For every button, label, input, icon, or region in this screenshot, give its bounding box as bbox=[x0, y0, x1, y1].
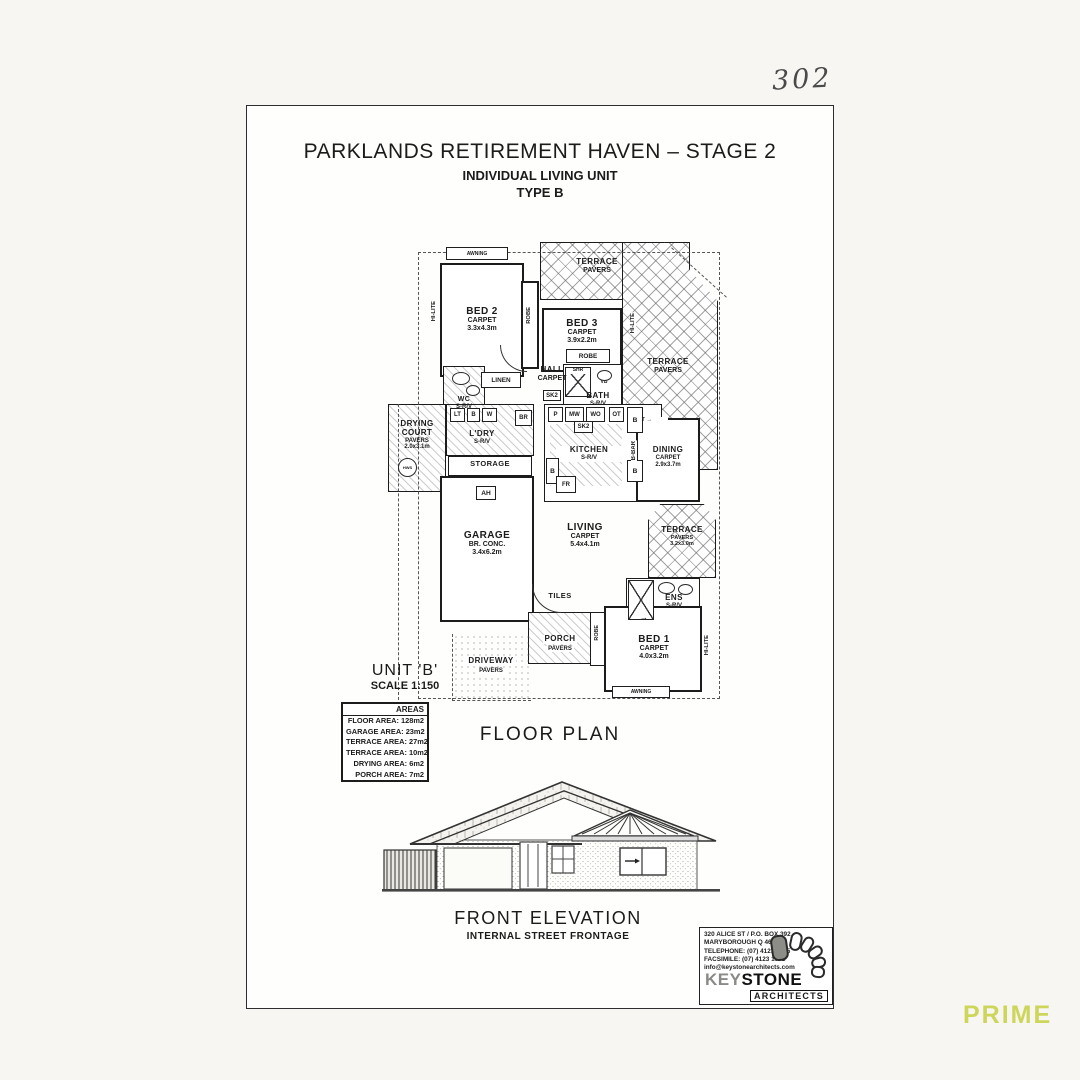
porch-label: PORCH PAVERS bbox=[530, 628, 590, 653]
front-elevation-svg bbox=[382, 770, 722, 898]
room-laundry-label: L'DRY S-R/V bbox=[452, 430, 512, 446]
brand-keystone: KEYSTONE bbox=[705, 970, 802, 990]
areas-row-drying: DRYING AREA: 6m2 bbox=[343, 759, 427, 770]
floor-plan-caption: FLOOR PLAN bbox=[430, 724, 670, 746]
unit-label-block: UNIT 'B' SCALE 1:150 bbox=[350, 662, 460, 692]
storage-label: STORAGE bbox=[448, 460, 532, 468]
robe-bed3: ROBE bbox=[566, 349, 610, 363]
kitchen-sink: SK2 bbox=[574, 421, 593, 433]
brand-architects: ARCHITECTS bbox=[750, 990, 828, 1002]
room-living-label: LIVING CARPET 5.4x4.1m bbox=[550, 522, 620, 549]
page-subtitle: INDIVIDUAL LIVING UNIT bbox=[290, 168, 790, 183]
room-bath-label: BATH S-R/V bbox=[576, 392, 620, 408]
awning-bottom: AWNING bbox=[612, 686, 670, 698]
room-ens-label: ENS S-R/V bbox=[652, 594, 696, 610]
unit-scale: SCALE 1:150 bbox=[350, 680, 460, 692]
areas-row-garage: GARAGE AREA: 23m2 bbox=[343, 727, 427, 738]
room-dining-label: DINING CARPET 2.9x3.7m bbox=[638, 446, 698, 468]
awning-top: AWNING bbox=[446, 247, 508, 260]
elevation-ground-line bbox=[382, 889, 720, 892]
kitchen-ot: OT bbox=[609, 407, 624, 422]
hws-unit: HWS bbox=[398, 458, 417, 477]
hilite-label-bed2: HI-LITE bbox=[431, 300, 437, 322]
architect-block: 320 ALICE ST / P.O. BOX 392 MARYBOROUGH … bbox=[699, 927, 833, 1005]
bath-vanity-basin bbox=[597, 370, 612, 381]
room-bed1-label: BED 1 CARPET 4.0x3.2m bbox=[614, 634, 694, 661]
kitchen-pantry: P bbox=[548, 407, 563, 422]
laundry-br: BR bbox=[515, 410, 532, 426]
front-elevation-subcaption: INTERNAL STREET FRONTAGE bbox=[418, 931, 678, 942]
laundry-b: B bbox=[467, 408, 480, 422]
sk2-hall: SK2 bbox=[543, 390, 561, 401]
front-elevation-caption: FRONT ELEVATION bbox=[418, 908, 678, 929]
driveway-label: DRIVEWAY PAVERS bbox=[456, 650, 526, 675]
kitchen-bench-right-bottom: B bbox=[627, 460, 643, 482]
terrace-top-label: TERRACE PAVERS bbox=[552, 258, 642, 275]
room-bed3-label: BED 3 CARPET 3.9x2.2m bbox=[546, 318, 618, 345]
robe-bed1-label: ROBE bbox=[594, 624, 600, 642]
kitchen-fridge: FR bbox=[556, 476, 576, 493]
shr-label: SHR bbox=[566, 368, 590, 374]
room-bed2-label: BED 2 CARPET 3.3x4.3m bbox=[444, 306, 520, 333]
areas-table-header: AREAS bbox=[343, 704, 427, 716]
ens-toilet bbox=[678, 584, 693, 595]
laundry-lt: LT bbox=[450, 408, 465, 422]
areas-row-terrace1: TERRACE AREA: 27m2 bbox=[343, 737, 427, 748]
page-title: PARKLANDS RETIREMENT HAVEN – STAGE 2 bbox=[290, 140, 790, 164]
kitchen-bench-right-top: B bbox=[627, 407, 643, 433]
terrace-small-label: TERRACE PAVERS 3.2x3.0m bbox=[650, 526, 714, 547]
unit-type-label: TYPE B bbox=[290, 185, 790, 200]
areas-row-floor: FLOOR AREA: 128m2 bbox=[343, 716, 427, 727]
drying-court-label: DRYING COURT PAVERS 2.0x3.1m bbox=[389, 420, 445, 451]
terrace-right-label: TERRACE PAVERS bbox=[628, 358, 708, 375]
linen-cupboard: LINEN bbox=[481, 372, 521, 388]
handwritten-sheet-number: 302 bbox=[771, 62, 833, 96]
elevation-garage-door bbox=[444, 848, 512, 889]
ens-basin bbox=[658, 582, 675, 594]
unit-name: UNIT 'B' bbox=[350, 662, 460, 680]
elevation-gable-fascia bbox=[572, 836, 698, 841]
title-block: PARKLANDS RETIREMENT HAVEN – STAGE 2 IND… bbox=[290, 140, 790, 200]
kitchen-microwave: MW bbox=[565, 407, 584, 422]
elevation-fence bbox=[384, 850, 436, 890]
ens-arrow: → bbox=[634, 614, 654, 623]
laundry-w: W bbox=[482, 408, 497, 422]
kitchen-wall-oven: WO bbox=[586, 407, 605, 422]
tiles-label: TILES bbox=[540, 592, 580, 600]
elevation-entry-door bbox=[520, 842, 547, 889]
front-elevation-drawing bbox=[382, 770, 722, 898]
room-kitchen-label: KITCHEN S-R/V bbox=[556, 446, 622, 462]
garage-ah: AH bbox=[476, 486, 496, 500]
wc-basin bbox=[466, 385, 480, 396]
room-garage-label: GARAGE BR. CONC. 3.4x6.2m bbox=[444, 530, 530, 557]
hilite-label-bed1: HI-LITE bbox=[704, 634, 710, 656]
areas-row-terrace2: TERRACE AREA: 10m2 bbox=[343, 748, 427, 759]
areas-row-porch: PORCH AREA: 7m2 bbox=[343, 770, 427, 781]
breakfast-bar-label: B-BAR bbox=[631, 440, 637, 461]
hilite-label-bed3: HI-LITE bbox=[630, 312, 636, 334]
wc-toilet bbox=[452, 372, 470, 385]
areas-table: AREAS FLOOR AREA: 128m2 GARAGE AREA: 23m… bbox=[341, 702, 429, 782]
elevation-gable bbox=[574, 810, 694, 836]
prime-watermark: PRIME bbox=[963, 1001, 1052, 1030]
robe-bed2-label: ROBE bbox=[526, 306, 532, 325]
